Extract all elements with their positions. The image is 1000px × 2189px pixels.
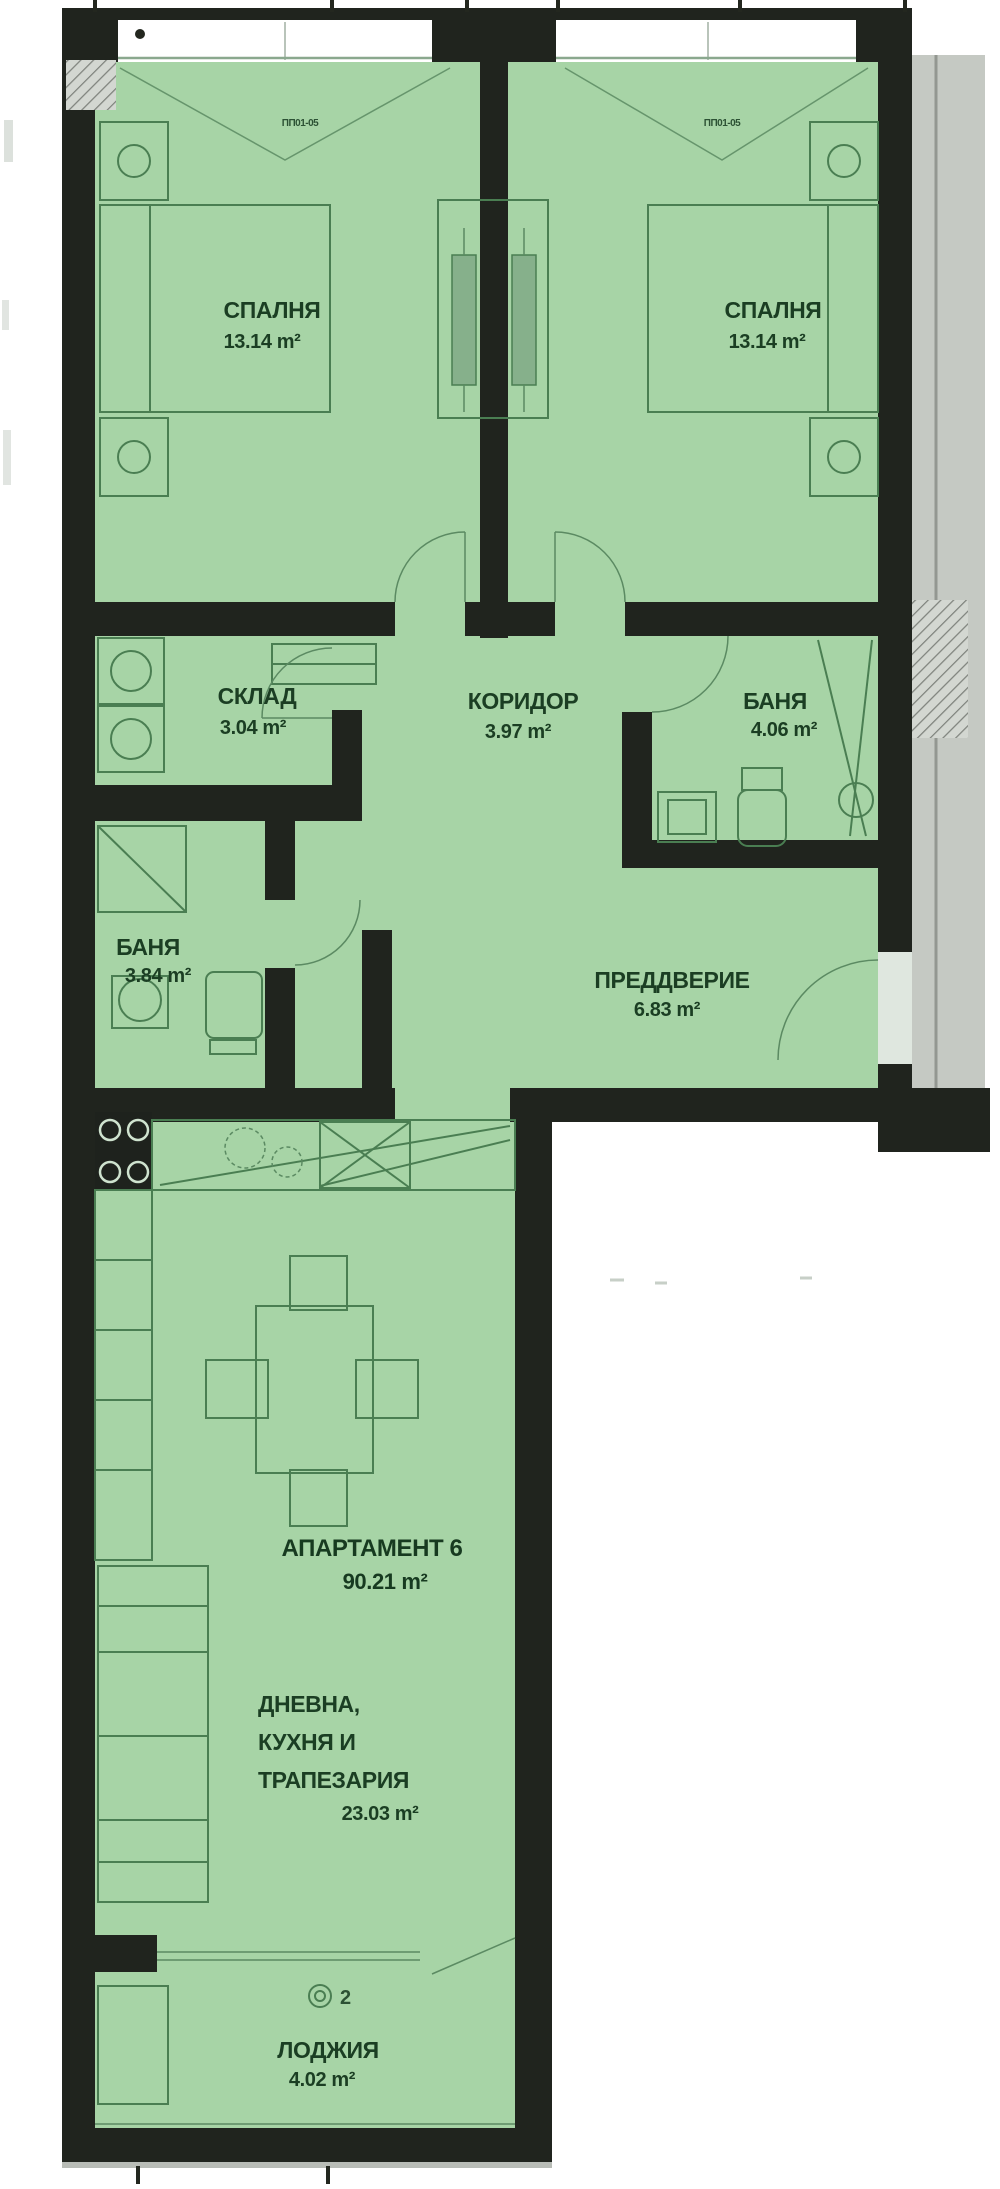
dimension-dot — [135, 29, 145, 39]
storage-area: 3.04 m² — [220, 717, 287, 739]
living-label-line2: КУХНЯ И — [258, 1729, 356, 1755]
loggia-number: 2 — [340, 1987, 351, 2009]
living-label-line1: ДНЕВНА, — [258, 1691, 360, 1717]
bath-left-area: 3.84 m² — [125, 965, 192, 987]
corridor-label: КОРИДОР — [468, 688, 579, 714]
bath-left-label: БАНЯ — [116, 934, 180, 960]
living-area: 23.03 m² — [342, 1803, 420, 1825]
window-tag: ПП01-05 — [704, 118, 741, 129]
floor-plan-page: ПП01-05 ПП01-05 СПАЛНЯ 13.14 m² СПАЛНЯ 1… — [0, 0, 1000, 2189]
vestibule-label: ПРЕДДВЕРИЕ — [594, 967, 749, 993]
bedroom-right-area: 13.14 m² — [729, 331, 807, 353]
apartment-total-area: 90.21 m² — [343, 1569, 428, 1594]
corridor-area: 3.97 m² — [485, 721, 552, 743]
bath-right-label: БАНЯ — [743, 688, 807, 714]
bedroom-left-label: СПАЛНЯ — [224, 297, 321, 323]
living-label-line3: ТРАПЕЗАРИЯ — [258, 1767, 409, 1793]
storage-label: СКЛАД — [218, 683, 297, 709]
loggia-label: ЛОДЖИЯ — [277, 2037, 379, 2063]
window-tag: ПП01-05 — [282, 118, 319, 129]
floor-plan-svg: ПП01-05 ПП01-05 СПАЛНЯ 13.14 m² СПАЛНЯ 1… — [0, 0, 1000, 2189]
hatched-wall-block — [912, 600, 968, 738]
vestibule-area: 6.83 m² — [634, 999, 701, 1021]
bedroom-right-label: СПАЛНЯ — [725, 297, 822, 323]
window-bedroom-right — [556, 20, 856, 62]
entrance-opening — [878, 952, 912, 1064]
bedroom-left-area: 13.14 m² — [224, 331, 302, 353]
bath-right-area: 4.06 m² — [751, 719, 818, 741]
adjacent-corridor-strip — [912, 55, 985, 1152]
apartment-title: АПАРТАМЕНТ 6 — [282, 1535, 463, 1562]
window-bedroom-left — [118, 20, 432, 62]
loggia-area: 4.02 m² — [289, 2069, 356, 2091]
